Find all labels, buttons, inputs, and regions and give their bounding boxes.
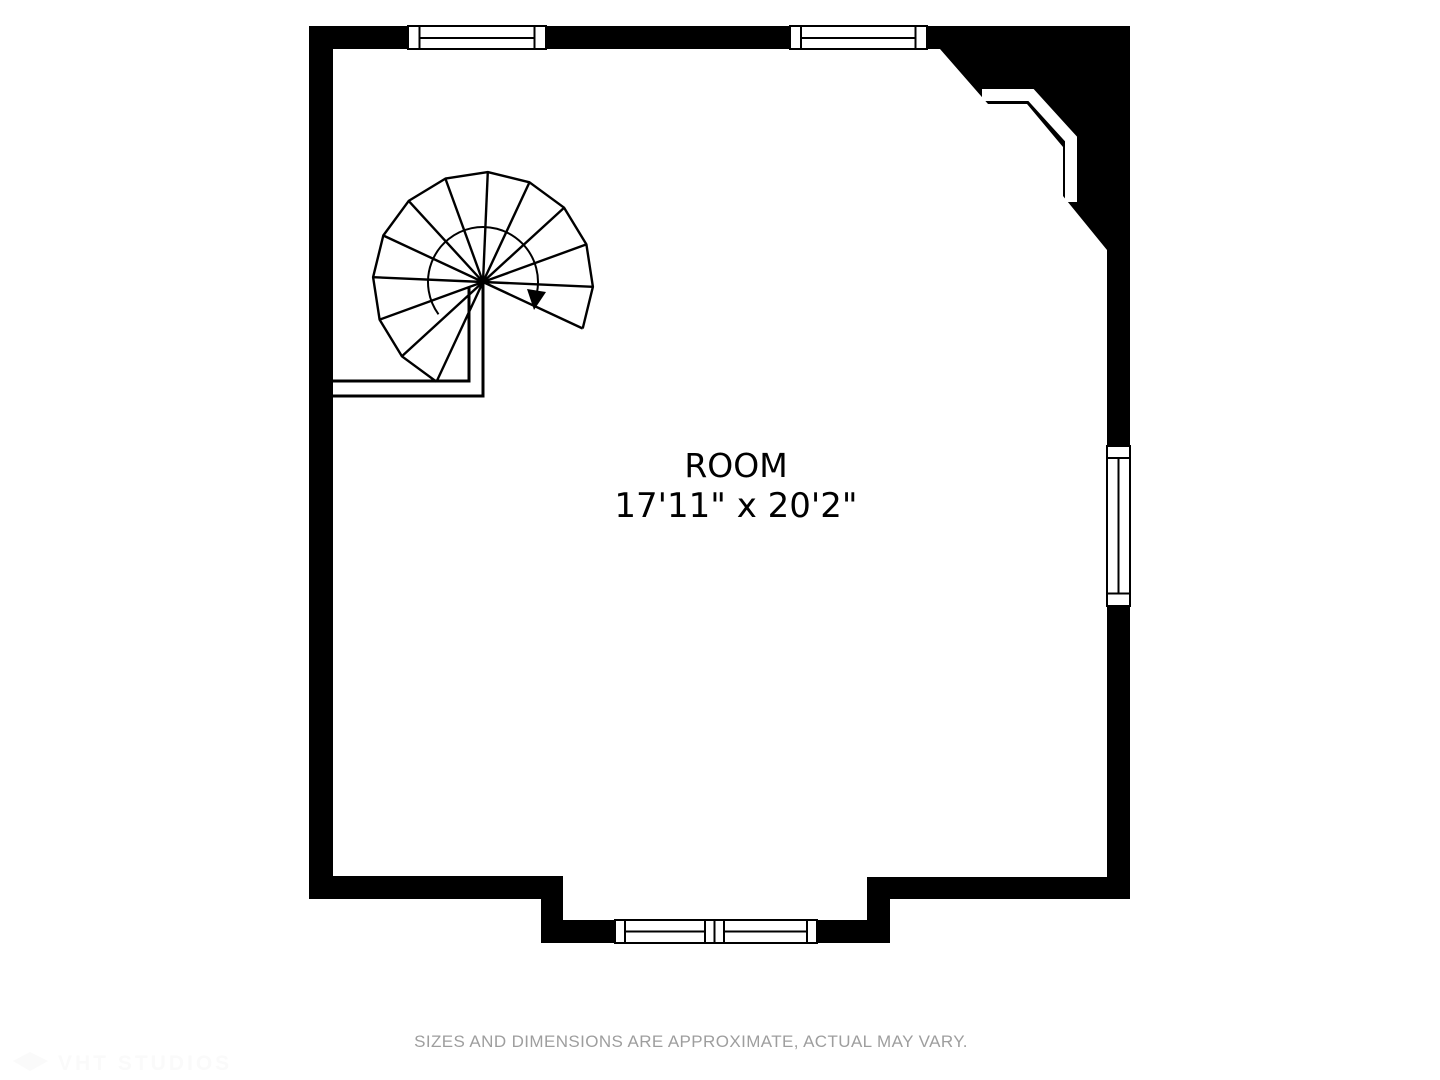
watermark-logo-icon bbox=[13, 1052, 48, 1071]
wall-left bbox=[309, 26, 333, 899]
watermark-text: VHT STUDIOS bbox=[58, 1052, 232, 1075]
spiral-staircase bbox=[333, 172, 593, 396]
wall-bottom-left bbox=[309, 876, 563, 899]
window-bottom-double bbox=[615, 920, 817, 943]
wall-right-lower bbox=[1107, 606, 1130, 899]
watermark: VHT STUDIOS bbox=[13, 1052, 232, 1075]
window-right bbox=[1107, 446, 1130, 606]
room-label: ROOM bbox=[684, 446, 787, 485]
wall-bottom-right bbox=[867, 877, 1130, 899]
disclaimer-text: SIZES AND DIMENSIONS ARE APPROXIMATE, AC… bbox=[414, 1032, 968, 1051]
room-dimensions: 17'11" x 20'2" bbox=[614, 486, 857, 526]
stair-railing bbox=[333, 282, 483, 396]
window-top-right bbox=[790, 26, 927, 49]
floor-plan-drawing: ROOM 17'11" x 20'2" SIZES AND DIMENSIONS… bbox=[0, 0, 1440, 1080]
floor-plan-page: ROOM 17'11" x 20'2" SIZES AND DIMENSIONS… bbox=[0, 0, 1440, 1080]
window-top-left bbox=[408, 26, 546, 49]
